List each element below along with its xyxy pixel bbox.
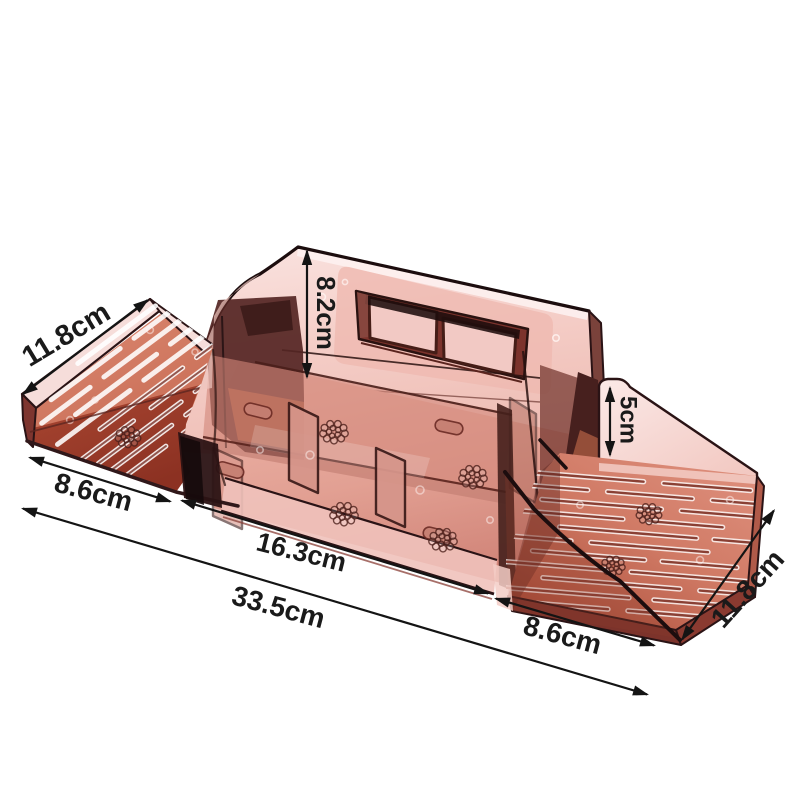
svg-text:5cm: 5cm [615,396,642,444]
svg-text:8.2cm: 8.2cm [311,276,341,350]
